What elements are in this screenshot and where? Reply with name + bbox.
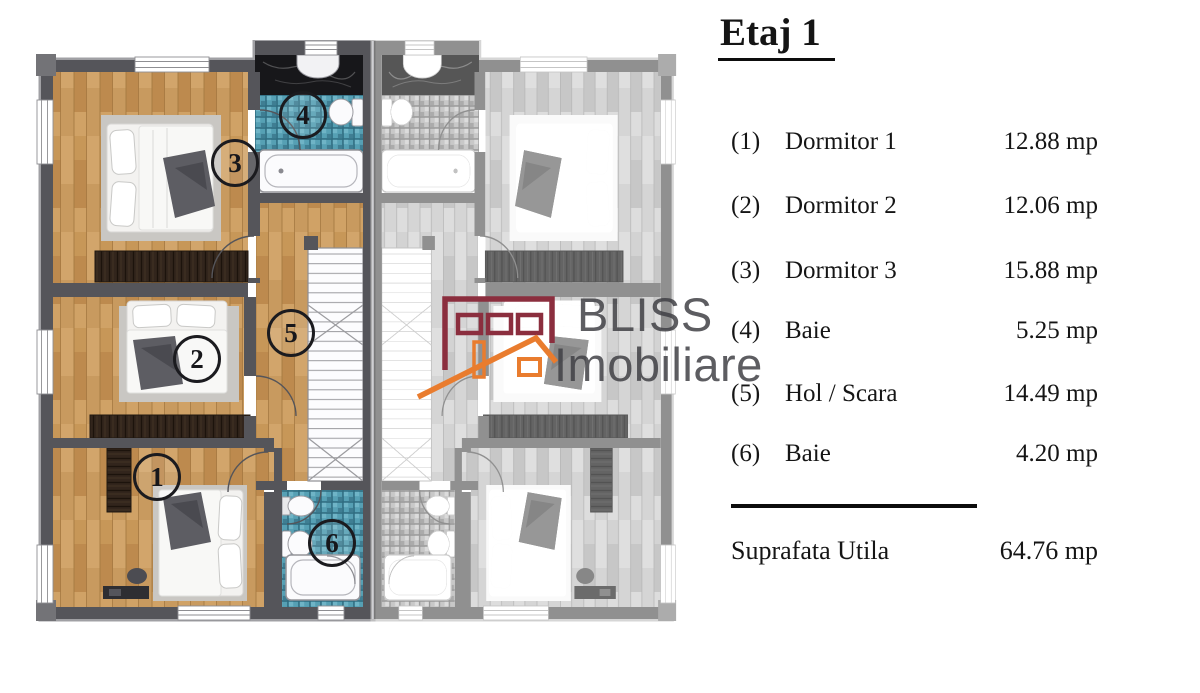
legend-row-number: (4) (731, 317, 760, 345)
bed-bedroom-1 (153, 485, 247, 601)
legend-row-area: 12.06 mp (1004, 192, 1098, 220)
room-label-2: 2 (173, 335, 221, 383)
room-label-6: 6 (308, 519, 356, 567)
legend-panel: Etaj 1 (1) Dormitor 1 12.88 mp (2) Dormi… (700, 0, 1120, 693)
page-title: Etaj 1 (718, 10, 835, 61)
legend-row-area: 5.25 mp (1016, 317, 1098, 345)
legend-divider (731, 504, 977, 508)
total-label: Suprafata Utila (731, 536, 889, 566)
legend-row-name: Baie (785, 317, 831, 345)
room-label-4: 4 (279, 91, 327, 139)
legend-row-5: (5) Hol / Scara 14.49 mp (700, 380, 1120, 412)
legend-row-name: Dormitor 3 (785, 257, 897, 285)
legend-row-1: (1) Dormitor 1 12.88 mp (700, 128, 1120, 160)
legend-row-area: 15.88 mp (1004, 257, 1098, 285)
page: { "legend": { "title": "Etaj 1", "rows":… (0, 0, 1200, 693)
party-wall-joint (372, 41, 374, 619)
room-label-3: 3 (211, 139, 259, 187)
legend-row-number: (2) (731, 192, 760, 220)
room-label-5: 5 (267, 309, 315, 357)
floor-plan-drawing (35, 40, 680, 622)
legend-row-3: (3) Dormitor 3 15.88 mp (700, 257, 1120, 289)
legend-row-number: (1) (731, 128, 760, 156)
legend-total-row: Suprafata Utila 64.76 mp (700, 536, 1120, 568)
legend-row-number: (5) (731, 380, 760, 408)
legend-row-4: (4) Baie 5.25 mp (700, 317, 1120, 349)
legend-row-area: 12.88 mp (1004, 128, 1098, 156)
right-unit-mirrored (373, 41, 676, 621)
bed-bedroom-3 (101, 115, 221, 241)
total-area: 64.76 mp (1000, 536, 1098, 566)
legend-row-2: (2) Dormitor 2 12.06 mp (700, 192, 1120, 224)
floor-plan: 1 2 3 4 5 6 (35, 40, 680, 622)
legend-row-area: 14.49 mp (1004, 380, 1098, 408)
legend-row-number: (6) (731, 440, 760, 468)
legend-row-name: Dormitor 2 (785, 192, 897, 220)
legend-row-area: 4.20 mp (1016, 440, 1098, 468)
room-label-1: 1 (133, 453, 181, 501)
legend-row-name: Hol / Scara (785, 380, 897, 408)
legend-row-name: Baie (785, 440, 831, 468)
legend-row-6: (6) Baie 4.20 mp (700, 440, 1120, 472)
staircase (304, 236, 363, 481)
legend-row-name: Dormitor 1 (785, 128, 897, 156)
legend-row-number: (3) (731, 257, 760, 285)
